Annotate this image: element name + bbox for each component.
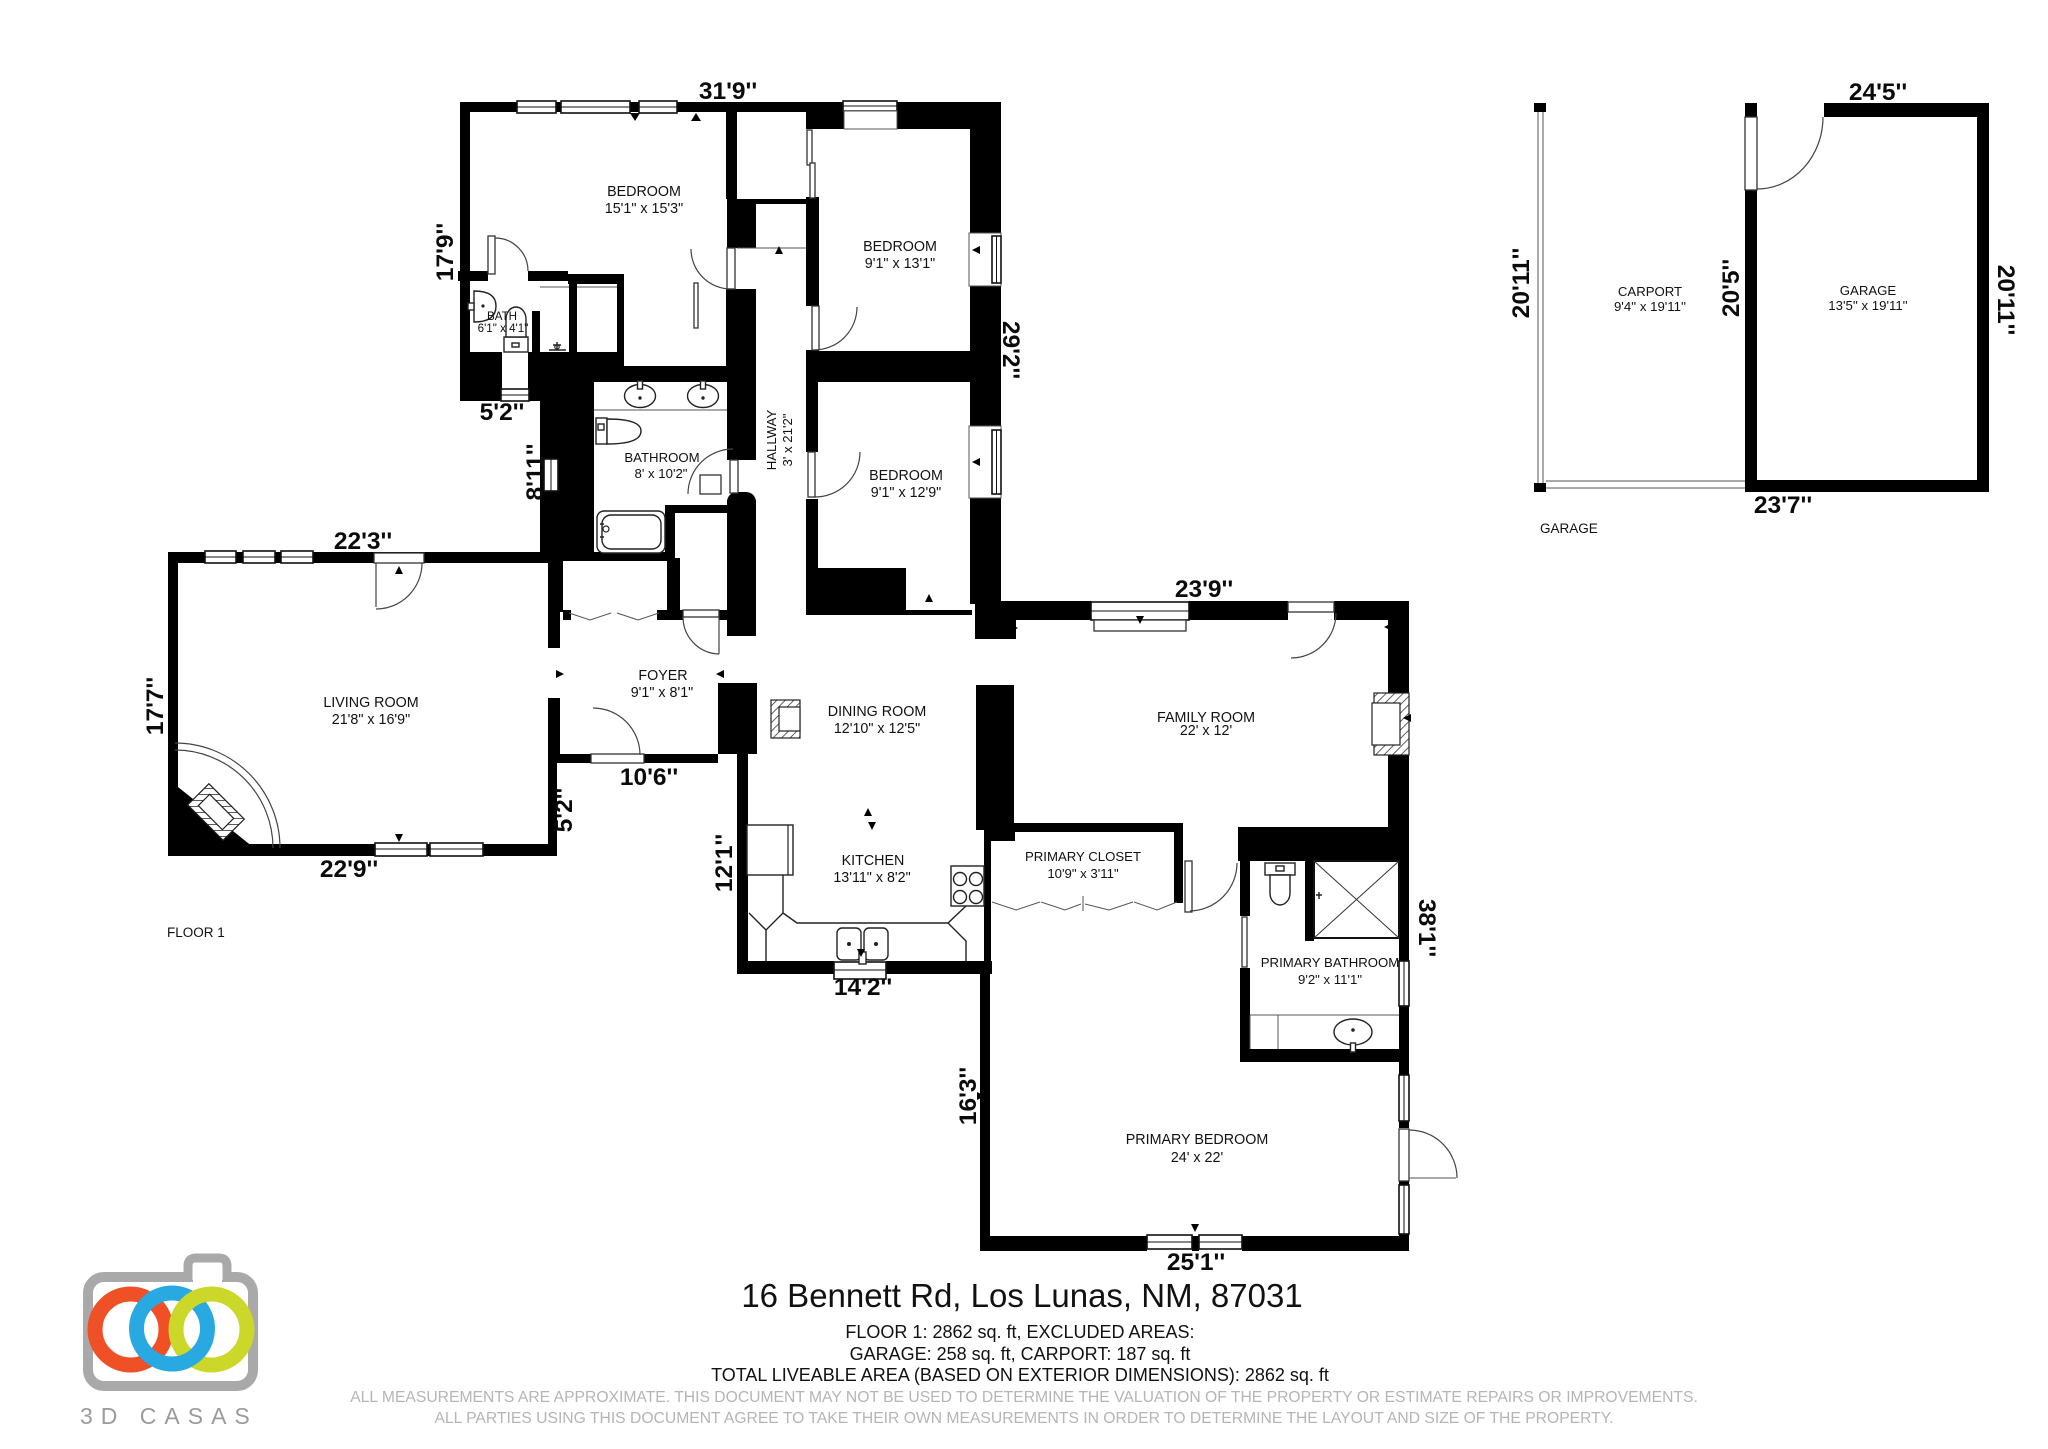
svg-text:12'10" x 12'5": 12'10" x 12'5" [834, 721, 920, 737]
svg-text:3D CASAS: 3D CASAS [80, 1403, 258, 1429]
svg-text:5'2'': 5'2'' [551, 788, 578, 833]
svg-text:31'9'': 31'9'' [699, 78, 757, 105]
svg-text:24'5'': 24'5'' [1849, 79, 1907, 106]
svg-text:BATHROOM: BATHROOM [624, 450, 699, 465]
svg-text:13'5'' x 19'11'': 13'5'' x 19'11'' [1828, 298, 1907, 313]
svg-text:FOYER: FOYER [638, 668, 687, 684]
svg-text:12'1'': 12'1'' [711, 834, 738, 892]
svg-text:PRIMARY CLOSET: PRIMARY CLOSET [1025, 849, 1141, 864]
svg-text:10'6'': 10'6'' [620, 764, 678, 791]
svg-text:ALL MEASUREMENTS ARE APPROXIMA: ALL MEASUREMENTS ARE APPROXIMATE. THIS D… [350, 1389, 1698, 1406]
svg-text:CARPORT: CARPORT [1618, 284, 1682, 299]
svg-text:25'1'': 25'1'' [1167, 1249, 1225, 1276]
svg-text:38'1'': 38'1'' [1413, 899, 1440, 957]
svg-text:9'1" x 13'1": 9'1" x 13'1" [865, 256, 935, 272]
svg-text:22'9'': 22'9'' [320, 856, 378, 883]
svg-text:FLOOR 1: FLOOR 1 [167, 925, 225, 940]
svg-text:GARAGE: GARAGE [1840, 283, 1897, 298]
svg-text:5'2'': 5'2'' [480, 399, 525, 426]
svg-text:BEDROOM: BEDROOM [869, 468, 943, 484]
svg-text:BEDROOM: BEDROOM [863, 239, 937, 255]
svg-text:9'2" x 11'1": 9'2" x 11'1" [1298, 972, 1362, 987]
svg-text:FLOOR 1: 2862 sq. ft, EXCLUDED: FLOOR 1: 2862 sq. ft, EXCLUDED AREAS: [845, 1322, 1194, 1342]
svg-text:20'11'': 20'11'' [1508, 248, 1535, 319]
svg-text:21'8" x 16'9": 21'8" x 16'9" [332, 712, 410, 728]
svg-text:20'11'': 20'11'' [1992, 265, 2019, 336]
svg-text:17'7'': 17'7'' [142, 677, 169, 735]
svg-text:3' x 21'2": 3' x 21'2" [780, 413, 795, 466]
svg-text:15'1" x 15'3": 15'1" x 15'3" [605, 201, 683, 217]
svg-text:16 Bennett Rd, Los Lunas, NM,: 16 Bennett Rd, Los Lunas, NM, 87031 [741, 1277, 1302, 1314]
svg-text:10'9" x 3'11": 10'9" x 3'11" [1047, 866, 1119, 881]
svg-text:24' x 22': 24' x 22' [1171, 1150, 1224, 1166]
svg-text:16'3'': 16'3'' [955, 1067, 982, 1125]
svg-text:PRIMARY BATHROOM: PRIMARY BATHROOM [1261, 955, 1400, 970]
svg-text:TOTAL LIVEABLE AREA (BASED ON: TOTAL LIVEABLE AREA (BASED ON EXTERIOR D… [711, 1365, 1329, 1385]
svg-text:HALLWAY: HALLWAY [764, 410, 779, 471]
svg-text:9'1" x 8'1": 9'1" x 8'1" [631, 685, 694, 701]
svg-text:8' x 10'2": 8' x 10'2" [635, 466, 688, 481]
svg-text:BEDROOM: BEDROOM [607, 184, 681, 200]
svg-text:6'1" x 4'1": 6'1" x 4'1" [478, 322, 529, 335]
svg-text:13'11" x 8'2": 13'11" x 8'2" [833, 870, 910, 886]
svg-text:9'1" x 12'9": 9'1" x 12'9" [871, 485, 941, 501]
svg-text:23'9'': 23'9'' [1175, 576, 1233, 603]
svg-text:8'11'': 8'11'' [522, 443, 549, 500]
svg-text:23'7'': 23'7'' [1754, 492, 1812, 519]
svg-text:14'2'': 14'2'' [834, 974, 892, 1001]
svg-text:29'2'': 29'2'' [997, 321, 1024, 379]
svg-text:GARAGE: GARAGE [1540, 521, 1598, 536]
svg-text:22'3'': 22'3'' [334, 528, 392, 555]
svg-text:GARAGE: 258 sq. ft, CARPORT: 1: GARAGE: 258 sq. ft, CARPORT: 187 sq. ft [850, 1344, 1191, 1364]
svg-text:9'4'' x 19'11'': 9'4'' x 19'11'' [1614, 299, 1686, 314]
svg-text:22' x 12': 22' x 12' [1180, 723, 1233, 739]
svg-text:20'5'': 20'5'' [1718, 259, 1745, 317]
svg-text:PRIMARY BEDROOM: PRIMARY BEDROOM [1126, 1132, 1268, 1148]
svg-text:ALL PARTIES USING THIS DOCUMEN: ALL PARTIES USING THIS DOCUMENT AGREE TO… [434, 1410, 1613, 1427]
svg-text:DINING ROOM: DINING ROOM [828, 704, 927, 720]
svg-text:17'9'': 17'9'' [432, 223, 459, 281]
svg-text:LIVING ROOM: LIVING ROOM [323, 695, 418, 711]
svg-text:KITCHEN: KITCHEN [842, 853, 905, 869]
